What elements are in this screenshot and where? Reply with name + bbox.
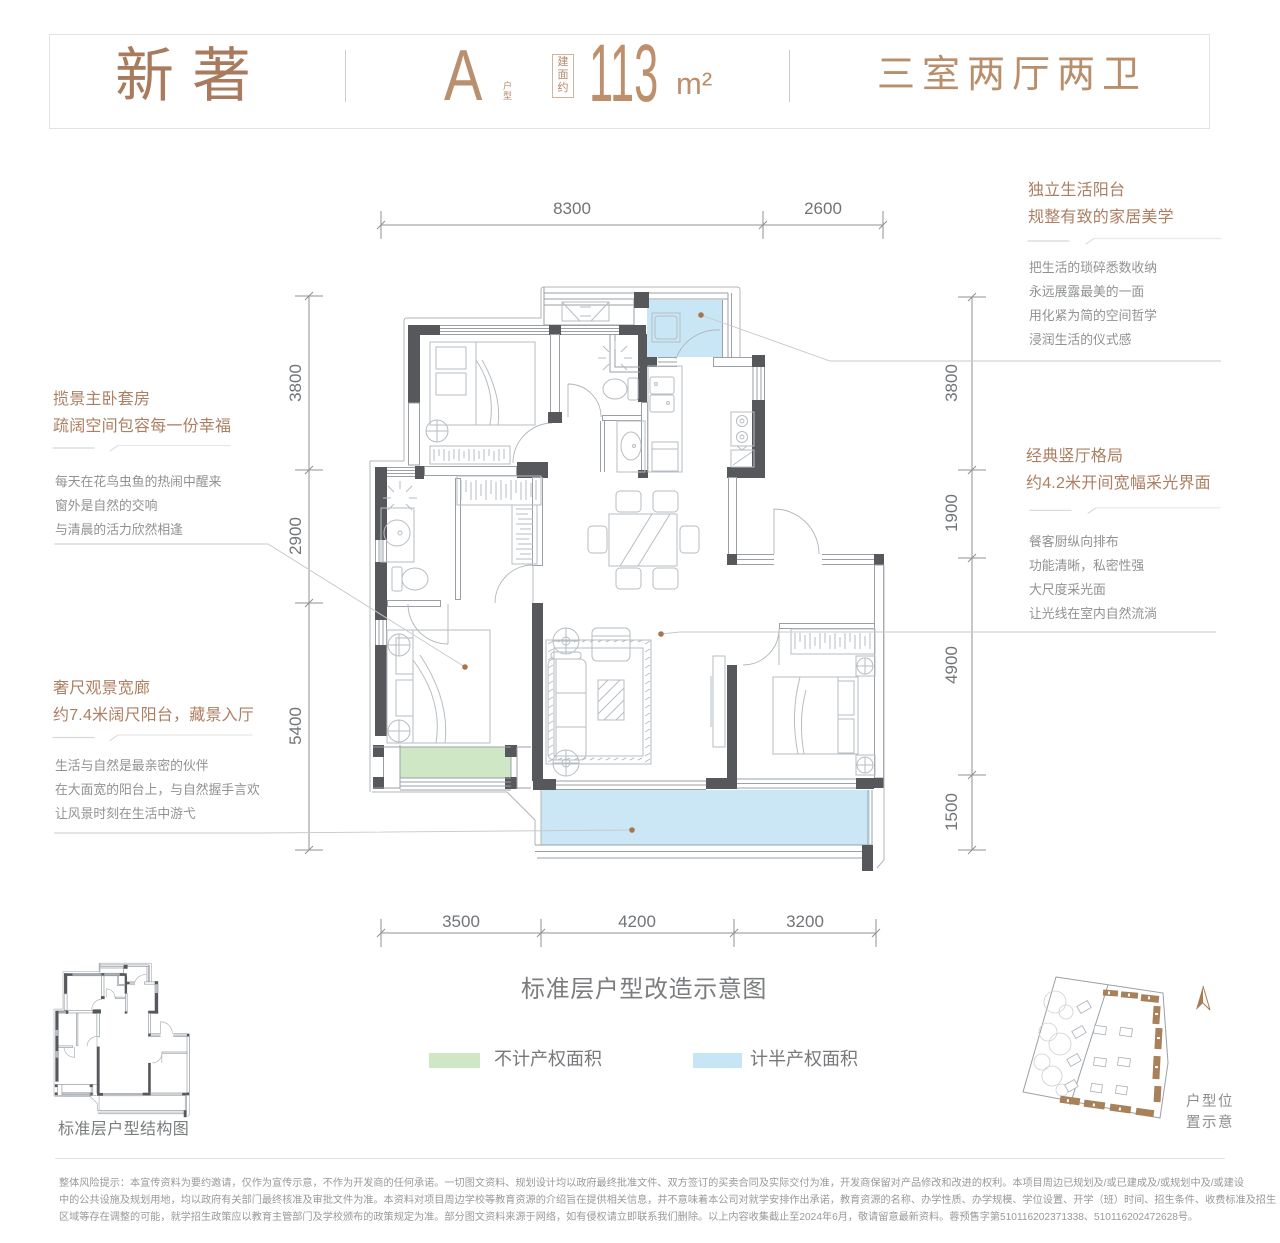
svg-text:3200: 3200: [786, 912, 824, 931]
svg-text:5400: 5400: [286, 707, 305, 745]
svg-text:2600: 2600: [804, 199, 842, 218]
svg-text:8300: 8300: [553, 199, 591, 218]
svg-text:3800: 3800: [942, 364, 961, 402]
svg-text:2900: 2900: [286, 517, 305, 555]
svg-text:1900: 1900: [942, 494, 961, 532]
svg-text:4200: 4200: [618, 912, 656, 931]
svg-text:3500: 3500: [442, 912, 480, 931]
svg-text:3800: 3800: [286, 364, 305, 402]
svg-text:4900: 4900: [942, 646, 961, 684]
svg-text:1500: 1500: [942, 793, 961, 831]
